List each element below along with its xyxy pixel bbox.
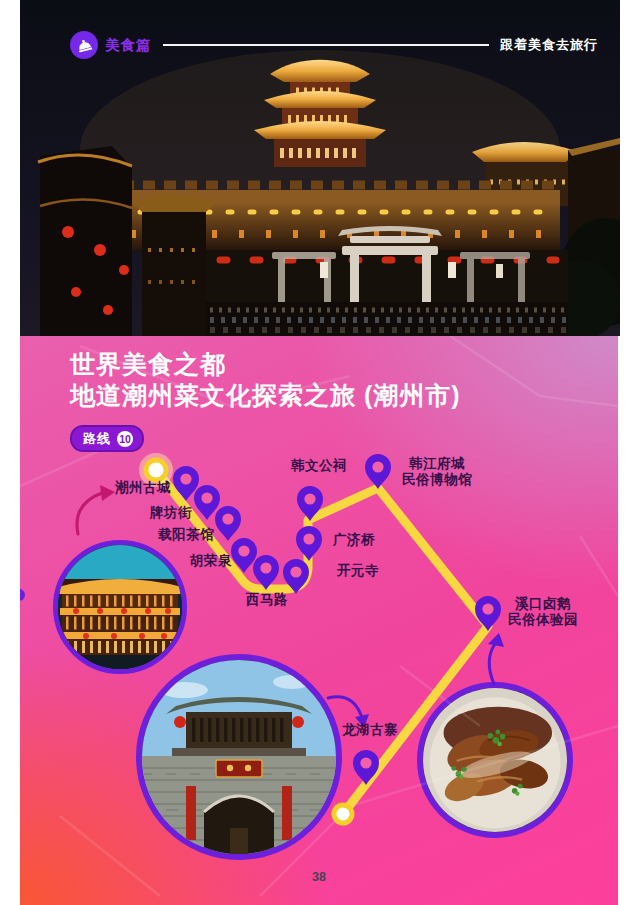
map-label-xikou-braised-goose-park: 溪口卤鹅 民俗体验园 [504, 596, 582, 628]
section-title-line1: 世界美食之都 [70, 348, 226, 381]
route-badge-number: 10 [117, 431, 133, 447]
map-label-paifang-street: 牌坊街 [150, 505, 192, 521]
arrow-to-xikou-pin [488, 633, 504, 684]
map-label-kaiyuan-temple: 开元寺 [337, 563, 379, 579]
map-label-longhu-ancient-village: 龙湖古寨 [342, 722, 398, 738]
edge-dot-decoration [20, 589, 25, 601]
map-label-hanjiang-fucheng-museum: 韩江府城 民俗博物馆 [396, 456, 478, 488]
map-label-hurongquan: 胡荣泉 [190, 553, 232, 569]
map-label-zaiyang-teahouse: 载阳茶馆 [158, 527, 214, 543]
map-label-chaozhou-ancient-city: 潮州古城 [115, 480, 171, 496]
end-marker [334, 805, 352, 823]
map-label-hanwengong-shrine: 韩文公祠 [291, 458, 347, 474]
arrow-to-ancient-city [77, 485, 115, 534]
route-badge-label: 路线 [83, 430, 111, 448]
header: 美食篇 跟着美食去旅行 [70, 31, 598, 59]
page: 美食篇 跟着美食去旅行 世界美食之都 地道潮州菜文化探索之旅 (潮州市) 路线 … [0, 0, 640, 905]
pin-hanjiang-fucheng-museum [365, 454, 391, 489]
pin-guangji-bridge [296, 526, 322, 561]
start-marker [146, 460, 166, 480]
pin-xikou-braised-goose-park [475, 596, 501, 631]
map-label-guangji-bridge: 广济桥 [333, 532, 375, 548]
route-line [156, 470, 488, 814]
food-cloche-icon [70, 31, 98, 59]
hero-photo: 美食篇 跟着美食去旅行 [20, 0, 620, 336]
pin-longhu-ancient-village [353, 750, 379, 785]
route-badge: 路线 10 [70, 425, 144, 452]
route-panel: 世界美食之都 地道潮州菜文化探索之旅 (潮州市) 路线 10 [20, 336, 618, 905]
logo-label: 美食篇 [105, 36, 152, 55]
page-number: 38 [20, 870, 618, 884]
map-label-xima-road: 西马路 [246, 592, 288, 608]
header-tagline: 跟着美食去旅行 [500, 36, 598, 54]
pin-hurongquan [215, 506, 241, 541]
header-divider [163, 44, 490, 46]
section-title-line2: 地道潮州菜文化探索之旅 (潮州市) [70, 379, 461, 412]
